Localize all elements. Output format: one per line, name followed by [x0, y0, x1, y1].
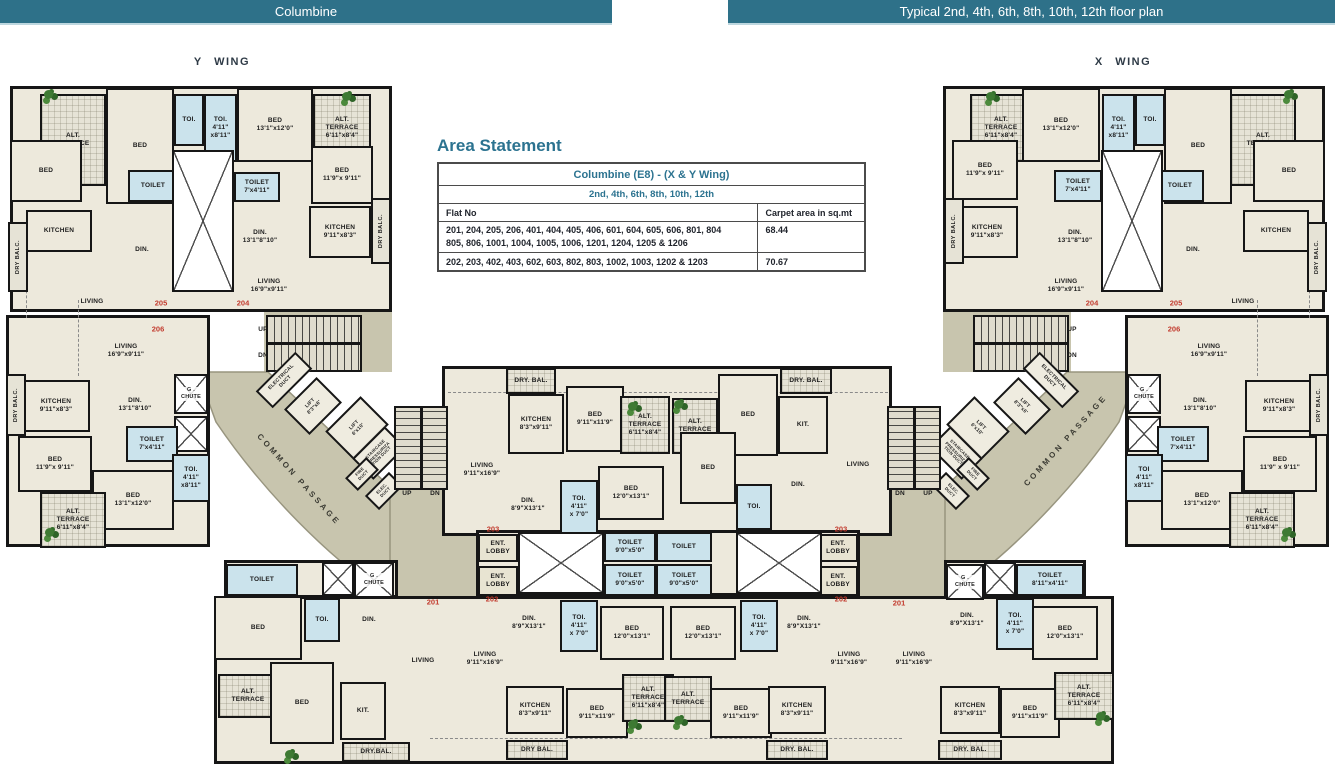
- room-name-label: ALT. TERRACE: [232, 688, 265, 704]
- room-name-label: ENT. LOBBY: [486, 540, 510, 556]
- room-name-label: TOI. 4'11" x 7'0": [750, 614, 768, 638]
- toilet-room: TOILET: [656, 532, 712, 562]
- room-name-label: BED 11'9"x 9'11": [966, 162, 1004, 178]
- room-name-label: DRY. BAL.: [953, 746, 986, 754]
- flat-number: 201: [427, 598, 440, 607]
- room-name-label: TOI. 4'11" x8'11": [211, 116, 231, 140]
- room-name-label: UP: [402, 490, 411, 498]
- room-label: DIN. 13'1"8"10": [1043, 210, 1107, 264]
- room-name-label: BED: [701, 464, 715, 472]
- room-name-label: BED 9'11"x11'9": [723, 705, 759, 721]
- garbage-chute: G . CHUTE: [1127, 374, 1161, 414]
- room-name-label: TOILET: [1168, 182, 1192, 190]
- staircase: [266, 315, 362, 372]
- room-label: DIN.: [342, 602, 396, 638]
- room-label: LIVING: [394, 640, 452, 682]
- room-name-label: KITCHEN 9'11"x8'3": [324, 224, 357, 240]
- flat-number: 206: [1168, 325, 1181, 334]
- room: BED 9'11"x11'9": [566, 688, 628, 738]
- direction-label: DN: [889, 489, 911, 500]
- terrace: ALT. TERRACE: [664, 676, 712, 722]
- shaft: [1127, 416, 1161, 452]
- terrace: ALT. TERRACE 6'11"x8'4": [1054, 672, 1114, 720]
- dry-balcony: DRY BALC.: [944, 198, 964, 264]
- room-name-label: BED 11'9"x 9'11": [323, 167, 361, 183]
- toilet-room: TOI.: [736, 484, 772, 530]
- toilet-room: TOILET 9'0"x5'0": [604, 532, 656, 562]
- room-name-label: KITCHEN: [1261, 227, 1291, 235]
- toilet-room: TOILET 7'x4'11": [1157, 426, 1209, 462]
- dry-balcony: DRY BALC.: [1307, 222, 1327, 292]
- room: BED 12'0"x13'1": [670, 606, 736, 660]
- room: KITCHEN 8'3"x9'11": [506, 686, 564, 734]
- room-label: DIN. 13'1"8"10": [228, 210, 292, 264]
- room-name-label: TOILET: [672, 543, 696, 551]
- room-name-label: UP: [1067, 326, 1076, 334]
- room-name-label: DRY BALC.: [1314, 240, 1321, 274]
- room: KITCHEN 9'11"x8'3": [1245, 380, 1313, 432]
- room: KITCHEN 9'11"x8'3": [22, 380, 90, 432]
- dry-balcony: DRY BALC.: [8, 222, 28, 292]
- room-name-label: KITCHEN 8'3"x9'11": [520, 416, 553, 432]
- room-name-label: ELEC. DUCT: [376, 483, 392, 499]
- tree-icon: [342, 92, 351, 101]
- room-name-label: DIN. 8'9"X13'1": [950, 612, 984, 628]
- room-name-label: ALT. TERRACE 6'11"x8'4": [629, 413, 662, 437]
- room-name-label: DN: [258, 352, 268, 360]
- room-name-label: BED 13'1"x12'0": [1043, 117, 1080, 133]
- room-name-label: KITCHEN 9'11"x8'3": [40, 398, 73, 414]
- room-name-label: ALT. TERRACE 6'11"x8'4": [1246, 508, 1279, 532]
- room-label: DIN. 13'1"8'10": [1163, 382, 1237, 428]
- room: BED: [10, 140, 82, 202]
- room-name-label: LIVING 9'11"x16'9": [896, 651, 932, 667]
- room-name-label: BED 12'0"x13'1": [614, 625, 651, 641]
- room-label: LIVING 16'9"x9'11": [1159, 330, 1259, 372]
- room-name-label: TOILET 8'11"x4'11": [1032, 572, 1068, 588]
- room-name-label: LIVING: [412, 657, 435, 665]
- room: BED: [1253, 140, 1325, 202]
- room-name-label: LIVING 16'9"x9'11": [1191, 343, 1227, 359]
- room-label: LIVING 16'9"x9'11": [76, 330, 176, 372]
- toilet-room: TOILET 7'x4'11": [1054, 170, 1102, 202]
- toilet-room: TOI.: [304, 598, 340, 642]
- room-name-label: TOILET 7'x4'11": [1170, 436, 1196, 452]
- room-name-label: BED 13'1"x12'0": [257, 117, 294, 133]
- room-name-label: ALT. TERRACE 6'11"x8'4": [326, 116, 359, 140]
- room-name-label: LIVING: [81, 298, 104, 306]
- shaft: [736, 532, 822, 594]
- room-name-label: DIN.: [362, 616, 376, 624]
- room-name-label: FIRE DUCT: [965, 466, 980, 481]
- toilet-room: TOILET 8'11"x4'11": [1016, 564, 1084, 596]
- room-name-label: UP: [923, 490, 932, 498]
- room-label: DIN. 13'1"8'10": [98, 382, 172, 428]
- flat-number: 204: [237, 299, 250, 308]
- room-name-label: TOILET 9'0"x5'0": [615, 539, 644, 555]
- room-name-label: DRY BALC.: [13, 388, 20, 422]
- tree-icon: [986, 92, 995, 101]
- flat-number: 203: [835, 525, 848, 534]
- room-name-label: DRY.BAL.: [360, 748, 391, 756]
- room-label: LIVING 9'11"x16'9": [814, 636, 884, 682]
- room-name-label: BED 9'11"x11'9": [579, 705, 615, 721]
- room-label: DIN. 8'9"X13'1": [498, 602, 560, 644]
- room-name-label: ALT. TERRACE 6'11"x8'4": [57, 508, 90, 532]
- tree-icon: [628, 402, 637, 411]
- room-name-label: KITCHEN: [44, 227, 74, 235]
- shaft: [1101, 150, 1163, 292]
- shaft: [984, 562, 1016, 596]
- room-name-label: FIRE DUCT: [354, 466, 369, 481]
- toilet-room: TOILET: [128, 170, 178, 202]
- shaft: [518, 532, 604, 594]
- shaft: [174, 416, 208, 452]
- room-name-label: LIFT 6'x10': [348, 419, 367, 438]
- room-name-label: LIVING 16'9"x9'11": [1048, 278, 1084, 294]
- room: BED 11'9" x 9'11": [1243, 436, 1317, 492]
- direction-label: UP: [1059, 324, 1085, 336]
- toilet-room: TOILET: [1156, 170, 1204, 202]
- terrace: DRY BAL.: [506, 740, 568, 760]
- room-name-label: UP: [258, 326, 267, 334]
- shaft: [322, 562, 354, 596]
- room: BED: [270, 662, 334, 744]
- room-name-label: ALT. TERRACE 6'11"x8'4": [632, 686, 665, 710]
- room-name-label: TOILET: [141, 182, 165, 190]
- room-name-label: ALT. TERRACE: [672, 691, 705, 707]
- room: BED 9'11"x11'9": [566, 386, 624, 452]
- room: KITCHEN 8'3"x9'11": [768, 686, 826, 734]
- room-name-label: BED 13'1"x12'0": [115, 492, 152, 508]
- staircase: [887, 406, 941, 490]
- room-name-label: ENT. LOBBY: [826, 540, 850, 556]
- staircase: [973, 315, 1069, 372]
- room-name-label: LIVING: [1232, 298, 1255, 306]
- room-name-label: TOI. 4'11" x8'11": [181, 466, 201, 490]
- room: BED 11'9"x 9'11": [952, 140, 1018, 200]
- room: BED 13'1"x12'0": [237, 88, 313, 162]
- entrance-lobby: ENT. LOBBY: [818, 566, 858, 596]
- room-name-label: LIVING 9'11"x16'9": [467, 651, 503, 667]
- room: BED: [680, 432, 736, 504]
- room-name-label: DIN. 8'9"X13'1": [511, 497, 545, 513]
- room-name-label: BED: [1282, 167, 1296, 175]
- room: BED 11'9"x 9'11": [311, 146, 373, 204]
- garbage-chute: G . CHUTE: [946, 564, 984, 600]
- tree-icon: [44, 90, 53, 99]
- room-name-label: LIFT 6'x10': [969, 419, 988, 438]
- room-name-label: TOI.: [182, 116, 195, 124]
- dry-balcony: DRY BALC.: [1309, 374, 1329, 436]
- flat-number: 205: [1170, 299, 1183, 308]
- room: BED 13'1"x12'0": [1022, 88, 1100, 162]
- room-name-label: BED 11'9" x 9'11": [1260, 456, 1300, 472]
- room-name-label: DRY. BAL.: [789, 377, 822, 385]
- direction-label: DN: [1059, 350, 1085, 362]
- entrance-lobby: ENT. LOBBY: [478, 566, 518, 596]
- flat-number: 202: [835, 595, 848, 604]
- room-name-label: TOILET: [250, 576, 274, 584]
- room-name-label: DRY BALC.: [951, 214, 958, 248]
- room-label: DIN.: [112, 230, 172, 270]
- room-name-label: TOI.: [315, 616, 328, 624]
- toilet-room: TOI.: [174, 94, 204, 146]
- toilet-room: TOILET 7'x4'11": [234, 172, 280, 202]
- room-label: DIN. 8'9"X13'1": [496, 484, 560, 526]
- toilet-room: TOILET 7'x4'11": [126, 426, 178, 462]
- room-name-label: KITCHEN 9'11"x8'3": [1263, 398, 1296, 414]
- floor-plan-page: { "header": { "left_title": "Columbine",…: [0, 0, 1335, 768]
- room-name-label: DIN. 8'9"X13'1": [512, 615, 546, 631]
- room-name-label: BED 12'0"x13'1": [685, 625, 722, 641]
- direction-label: UP: [250, 324, 276, 336]
- room-name-label: LIFT 8'3"x6': [303, 396, 323, 416]
- room: KITCHEN 9'11"x8'3": [956, 206, 1018, 258]
- terrace: DRY. BAL.: [780, 368, 832, 394]
- room-name-label: G . CHUTE: [180, 387, 202, 401]
- room-name-label: G . CHUTE: [1133, 387, 1155, 401]
- room-name-label: DIN.: [1186, 246, 1200, 254]
- room-name-label: BED: [295, 699, 309, 707]
- room-label: DIN.: [770, 466, 826, 504]
- room: BED 12'0"x13'1": [598, 466, 664, 520]
- tree-icon: [45, 528, 54, 537]
- room-name-label: DRY BALC.: [1316, 388, 1323, 422]
- room-name-label: TOI. 4'11" x8'11": [1109, 116, 1129, 140]
- room-name-label: DN: [1067, 352, 1077, 360]
- tree-icon: [1284, 90, 1293, 99]
- room-name-label: DIN. 13'1"8'10": [1184, 397, 1217, 413]
- room-name-label: KITCHEN 8'3"x9'11": [954, 702, 987, 718]
- room-name-label: TOI. 4'11" x 7'0": [570, 495, 588, 519]
- dry-balcony: DRY BALC.: [371, 198, 391, 264]
- tree-icon: [285, 750, 294, 759]
- room-name-label: BED 11'9"x 9'11": [36, 456, 74, 472]
- room-name-label: LIVING 16'9"x9'11": [251, 278, 287, 294]
- room-name-label: TOI. 4'11" x 7'0": [1006, 612, 1024, 636]
- room: KITCHEN: [26, 210, 92, 252]
- room: KITCHEN 8'3"x9'11": [940, 686, 1000, 734]
- room-name-label: ENT. LOBBY: [486, 573, 510, 589]
- room-name-label: TOI.: [747, 503, 760, 511]
- room-name-label: DIN.: [791, 481, 805, 489]
- room-label: LIVING: [824, 444, 892, 486]
- room-name-label: ENT. LOBBY: [826, 573, 850, 589]
- room: BED 12'0"x13'1": [1032, 606, 1098, 660]
- room-name-label: DRY BALC.: [378, 214, 385, 248]
- dry-balcony: DRY BALC.: [6, 374, 26, 436]
- flat-number: 202: [486, 595, 499, 604]
- room-name-label: DRY BALC.: [15, 240, 22, 274]
- room-name-label: DIN. 8'9"X13'1": [787, 615, 821, 631]
- room-name-label: BED 12'0"x13'1": [1047, 625, 1084, 641]
- flat-number: 201: [893, 599, 906, 608]
- staircase: [394, 406, 448, 490]
- room: BED: [214, 596, 302, 660]
- room-name-label: DN: [430, 490, 440, 498]
- room: KIT.: [778, 396, 828, 454]
- room-name-label: KIT.: [797, 421, 809, 429]
- room-name-label: TOILET 7'x4'11": [244, 179, 270, 195]
- garbage-chute: G . CHUTE: [354, 562, 394, 598]
- room-name-label: BED: [741, 411, 755, 419]
- flat-number: 206: [152, 325, 165, 334]
- room-name-label: BED 9'11"x11'9": [577, 411, 613, 427]
- room-name-label: DIN. 13'1"8'10": [119, 397, 152, 413]
- room-name-label: BED: [251, 624, 265, 632]
- room: KITCHEN: [1243, 210, 1309, 252]
- terrace: ALT. TERRACE 6'11"x8'4": [40, 492, 106, 548]
- room-name-label: LIVING 9'11"x16'9": [831, 651, 867, 667]
- room-name-label: DRY. BAL.: [780, 746, 813, 754]
- room-name-label: TOILET 9'0"x5'0": [615, 572, 644, 588]
- room-name-label: G . CHUTE: [954, 575, 976, 589]
- room-name-label: ALT. TERRACE 6'11"x8'4": [1068, 684, 1101, 708]
- tree-icon: [674, 400, 683, 409]
- room-name-label: TOI. 4'11" x 7'0": [570, 614, 588, 638]
- toilet-room: TOI. 4'11" x 7'0": [996, 598, 1034, 650]
- room-name-label: TOILET 7'x4'11": [1065, 178, 1091, 194]
- room-name-label: DIN.: [135, 246, 149, 254]
- room-name-label: ALT. TERRACE 6'11"x8'4": [985, 116, 1018, 140]
- entrance-lobby: ENT. LOBBY: [818, 534, 858, 562]
- room: BED 11'9"x 9'11": [18, 436, 92, 492]
- toilet-room: TOI. 4'11" x8'11": [172, 454, 210, 502]
- direction-label: DN: [424, 489, 446, 500]
- terrace: ALT. TERRACE 6'11"x8'4": [1229, 492, 1295, 548]
- terrace: DRY.BAL.: [342, 742, 410, 762]
- room-name-label: BED: [1191, 142, 1205, 150]
- shaft: [172, 150, 234, 292]
- room-name-label: KITCHEN 8'3"x9'11": [781, 702, 814, 718]
- toilet-room: TOI. 4'11" x 7'0": [560, 600, 598, 652]
- room-label: DIN. 8'9"X13'1": [936, 598, 998, 642]
- room-name-label: LIFT 8'3"x6': [1012, 396, 1032, 416]
- room-name-label: LIVING 9'11"x16'9": [464, 462, 500, 478]
- room-label: LIVING 9'11"x16'9": [880, 636, 948, 682]
- room-name-label: DIN. 13'1"8"10": [1058, 229, 1092, 245]
- room: BED 12'0"x13'1": [600, 606, 664, 660]
- room-name-label: TOI 4'11" x8'11": [1134, 466, 1154, 490]
- room-name-label: DRY BAL.: [521, 746, 553, 754]
- garbage-chute: G . CHUTE: [174, 374, 208, 414]
- toilet-room: TOILET 9'0"x5'0": [604, 564, 656, 596]
- room-label: DIN.: [1163, 230, 1223, 270]
- toilet-room: TOI 4'11" x8'11": [1125, 454, 1163, 502]
- room-name-label: KIT.: [357, 707, 369, 715]
- room-name-label: BED 13'1"x12'0": [1184, 492, 1221, 508]
- room-name-label: TOILET 9'0"x5'0": [669, 572, 698, 588]
- room-name-label: DRY. BAL.: [514, 377, 547, 385]
- terrace: ALT. TERRACE: [218, 674, 278, 718]
- room-name-label: KITCHEN 9'11"x8'3": [971, 224, 1004, 240]
- room-name-label: TOILET 7'x4'11": [139, 436, 165, 452]
- toilet-room: TOI.: [1135, 94, 1165, 146]
- room: BED 9'11"x11'9": [710, 688, 772, 738]
- room-name-label: DIN. 13'1"8"10": [243, 229, 277, 245]
- room-name-label: G . CHUTE: [363, 573, 385, 587]
- tree-icon: [674, 716, 683, 725]
- room-name-label: BED 12'0"x13'1": [613, 485, 650, 501]
- room-name-label: LIVING: [847, 461, 870, 469]
- direction-label: UP: [917, 489, 939, 500]
- terrace: DRY. BAL.: [938, 740, 1002, 760]
- toilet-room: TOILET: [226, 564, 298, 596]
- flat-number: 204: [1086, 299, 1099, 308]
- room-label: LIVING: [50, 290, 134, 314]
- terrace: DRY. BAL.: [506, 368, 556, 394]
- room-name-label: KITCHEN 8'3"x9'11": [519, 702, 552, 718]
- direction-label: DN: [250, 350, 276, 362]
- room: KITCHEN 9'11"x8'3": [309, 206, 371, 258]
- direction-label: UP: [396, 489, 418, 500]
- boundary-dash-line: [430, 738, 902, 739]
- room-name-label: ELEC. DUCT: [943, 483, 959, 499]
- flat-number: 203: [487, 525, 500, 534]
- room-name-label: TOI.: [1143, 116, 1156, 124]
- entrance-lobby: ENT. LOBBY: [478, 534, 518, 562]
- tree-icon: [628, 720, 637, 729]
- terrace: DRY. BAL.: [766, 740, 828, 760]
- room-name-label: BED: [133, 142, 147, 150]
- flat-number: 205: [155, 299, 168, 308]
- tree-icon: [1282, 528, 1291, 537]
- room-name-label: LIVING 16'9"x9'11": [108, 343, 144, 359]
- room-label: LIVING: [1201, 290, 1285, 314]
- room-name-label: DN: [895, 490, 905, 498]
- room-name-label: BED: [39, 167, 53, 175]
- tree-icon: [1096, 712, 1105, 721]
- toilet-room: TOI. 4'11" x 7'0": [560, 480, 598, 534]
- room: KIT.: [340, 682, 386, 740]
- toilet-room: TOILET 9'0"x5'0": [656, 564, 712, 596]
- room: BED 9'11"x11'9": [1000, 688, 1060, 738]
- room-name-label: BED 9'11"x11'9": [1012, 705, 1048, 721]
